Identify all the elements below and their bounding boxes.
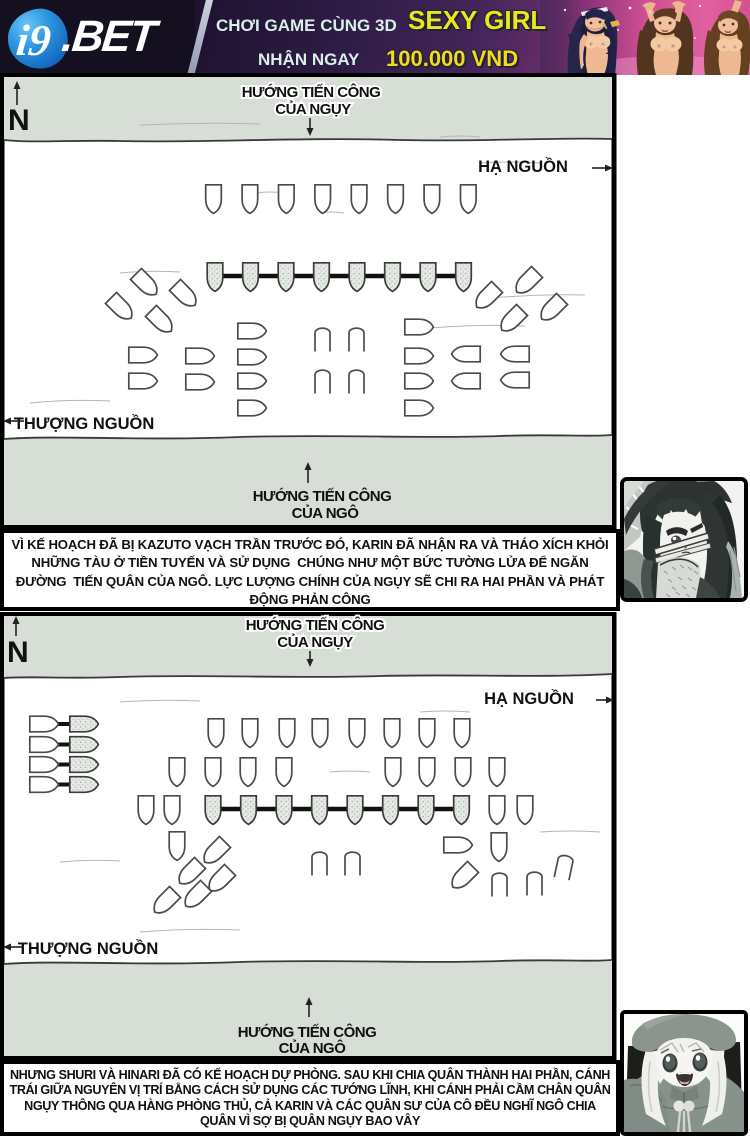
svg-text:HẠ NGUỒN: HẠ NGUỒN [478, 157, 568, 176]
svg-text:i9: i9 [14, 16, 53, 65]
svg-text:N: N [8, 104, 30, 137]
svg-text:N: N [7, 636, 29, 669]
svg-text:HẠ NGUỒN: HẠ NGUỒN [484, 689, 574, 708]
svg-text:CỦA NGỤY: CỦA NGỤY [275, 100, 351, 118]
svg-text:THƯỢNG NGUỒN: THƯỢNG NGUỒN [18, 939, 159, 958]
svg-text:THƯỢNG NGUỒN: THƯỢNG NGUỒN [14, 414, 155, 433]
svg-text:CỦA NGÔ: CỦA NGÔ [279, 1039, 347, 1057]
svg-text:CỦA NGÔ: CỦA NGÔ [292, 504, 360, 522]
svg-text:CỦA NGỤY: CỦA NGỤY [277, 633, 353, 651]
svg-text:HƯỚNG TIẾN CÔNG: HƯỚNG TIẾN CÔNG [242, 83, 381, 101]
svg-text:HƯỚNG TIẾN CÔNG: HƯỚNG TIẾN CÔNG [238, 1023, 377, 1041]
svg-text:HƯỚNG TIẾN CÔNG: HƯỚNG TIẾN CÔNG [253, 487, 392, 505]
svg-text:HƯỚNG TIẾN CÔNG: HƯỚNG TIẾN CÔNG [246, 616, 385, 634]
